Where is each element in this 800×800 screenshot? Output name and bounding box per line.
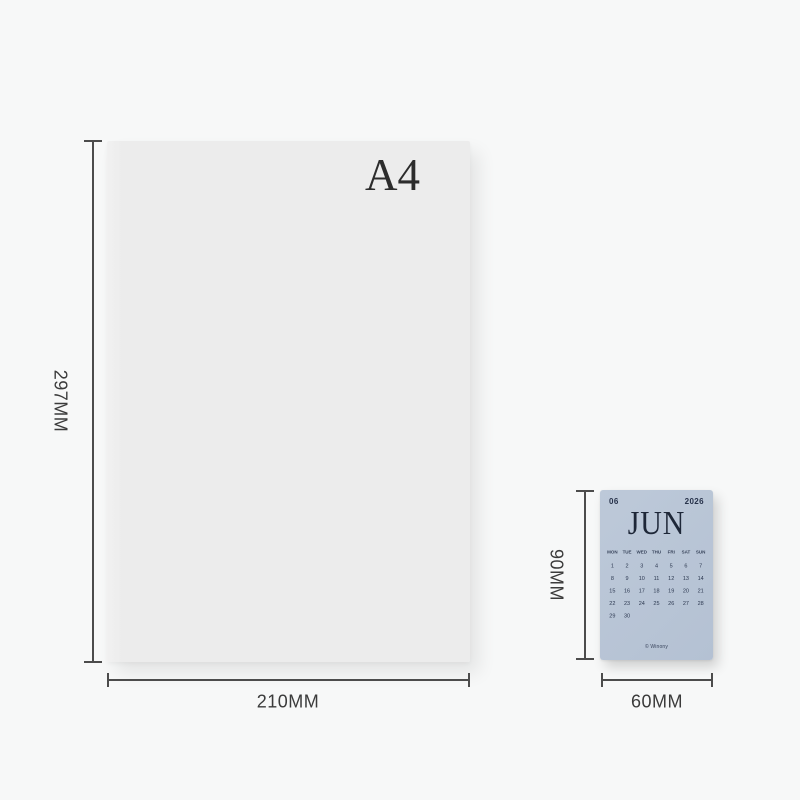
calendar-date-cell: 2 bbox=[620, 560, 635, 573]
dimension-tick bbox=[711, 673, 713, 687]
calendar-date-cell: 17 bbox=[634, 585, 649, 598]
calendar-date-cell: 23 bbox=[620, 598, 635, 611]
dimension-tick bbox=[601, 673, 603, 687]
calendar-weekday-label: FRI bbox=[664, 548, 679, 556]
calendar-month-name: JUN bbox=[607, 507, 706, 541]
calendar-weekday-label: SAT bbox=[679, 548, 694, 556]
calendar-date-cell: 8 bbox=[605, 573, 620, 586]
calendar-date-cell: 11 bbox=[649, 573, 664, 586]
calendar-year: 2026 bbox=[685, 497, 704, 506]
calendar-width-dimension-line bbox=[601, 679, 713, 681]
calendar-month-number: 06 bbox=[609, 497, 619, 506]
calendar-weekday-label: WED bbox=[634, 548, 649, 556]
calendar-date-cell: 28 bbox=[693, 598, 708, 611]
calendar-date-cell: 12 bbox=[664, 573, 679, 586]
calendar-date-cell: 4 bbox=[649, 560, 664, 573]
calendar-card-header: 06 2026 bbox=[600, 490, 713, 506]
calendar-date-cell: 19 bbox=[664, 585, 679, 598]
calendar-height-dimension-line bbox=[584, 490, 586, 660]
a4-width-label: 210MM bbox=[257, 692, 320, 713]
calendar-date-cell: 1 bbox=[605, 560, 620, 573]
calendar-width-label: 60MM bbox=[631, 692, 683, 713]
calendar-date-cell: 24 bbox=[634, 598, 649, 611]
a4-height-label: 297MM bbox=[50, 370, 71, 433]
calendar-date-cell: 16 bbox=[620, 585, 635, 598]
calendar-date-cell: 9 bbox=[620, 573, 635, 586]
calendar-date-cell: 10 bbox=[634, 573, 649, 586]
dimension-tick bbox=[84, 140, 102, 142]
calendar-date-cell: 14 bbox=[693, 573, 708, 586]
calendar-date-cell: 18 bbox=[649, 585, 664, 598]
dimension-tick bbox=[468, 673, 470, 687]
calendar-date-cell: 20 bbox=[679, 585, 694, 598]
calendar-dates: 1 2 3 4 5 6 7 8 9 10 11 12 13 14 15 16 1… bbox=[605, 560, 708, 623]
calendar-date-cell: 27 bbox=[679, 598, 694, 611]
calendar-date-cell: 29 bbox=[605, 610, 620, 623]
calendar-date-cell bbox=[693, 610, 708, 623]
product-size-diagram: A4 297MM 210MM 06 2026 JUN MON TUE WED T… bbox=[0, 0, 800, 800]
a4-sheet: A4 bbox=[107, 141, 470, 662]
dimension-tick bbox=[107, 673, 109, 687]
a4-height-dimension-line bbox=[92, 140, 94, 663]
calendar-height-label: 90MM bbox=[546, 549, 567, 601]
a4-size-title: A4 bbox=[365, 151, 420, 201]
calendar-date-cell: 21 bbox=[693, 585, 708, 598]
dimension-tick bbox=[576, 490, 594, 492]
calendar-brand-logo: © Winony bbox=[628, 644, 685, 650]
calendar-weekday-row: MON TUE WED THU FRI SAT SUN bbox=[605, 548, 708, 556]
calendar-weekday-label: SUN bbox=[693, 548, 708, 556]
dimension-tick bbox=[84, 661, 102, 663]
calendar-date-cell: 15 bbox=[605, 585, 620, 598]
calendar-date-cell: 30 bbox=[620, 610, 635, 623]
calendar-date-cell: 13 bbox=[679, 573, 694, 586]
calendar-date-cell: 3 bbox=[634, 560, 649, 573]
calendar-weekday-label: THU bbox=[649, 548, 664, 556]
calendar-date-cell: 6 bbox=[679, 560, 694, 573]
calendar-date-cell bbox=[634, 610, 649, 623]
calendar-date-cell bbox=[649, 610, 664, 623]
a4-width-dimension-line bbox=[107, 679, 470, 681]
calendar-weekday-label: MON bbox=[605, 548, 620, 556]
calendar-card: 06 2026 JUN MON TUE WED THU FRI SAT SUN … bbox=[600, 490, 713, 660]
calendar-date-cell: 25 bbox=[649, 598, 664, 611]
calendar-grid: MON TUE WED THU FRI SAT SUN 1 2 3 4 5 6 … bbox=[605, 548, 708, 623]
calendar-date-cell: 26 bbox=[664, 598, 679, 611]
calendar-weekday-label: TUE bbox=[620, 548, 635, 556]
calendar-date-cell: 22 bbox=[605, 598, 620, 611]
dimension-tick bbox=[576, 658, 594, 660]
calendar-date-cell: 7 bbox=[693, 560, 708, 573]
calendar-date-cell bbox=[679, 610, 694, 623]
calendar-date-cell: 5 bbox=[664, 560, 679, 573]
calendar-date-cell bbox=[664, 610, 679, 623]
